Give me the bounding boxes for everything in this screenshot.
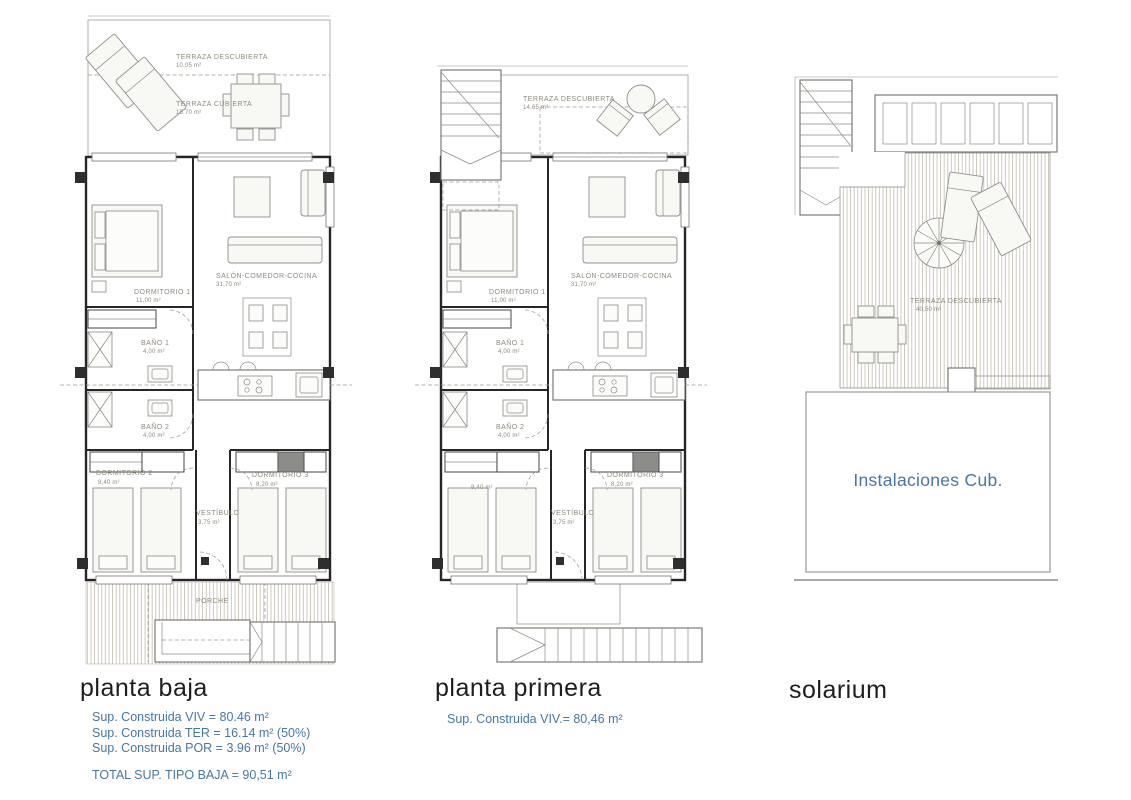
bano1-area: 4,00 m² [498,349,520,355]
terraza-descubierta-label: TERRAZA DESCUBIERTA [176,54,268,61]
dormitorio1-label: DORMITORIO 1 [134,289,191,296]
summary-planta-baja: Sup. Construida VIV = 80.46 m² Sup. Cons… [92,710,310,757]
terraza-descubierta-label: TERRAZA DESCUBIERTA [523,96,615,103]
vestibulo-label: VESTÍBULO [551,508,594,517]
coffee-table [234,177,270,217]
bed-single [496,488,536,572]
sofa [228,237,322,263]
kitchen-sink [296,373,322,397]
porche-label: PORCHE [196,598,229,605]
dormitorio3-label: DORMITORIO 3 [607,472,664,479]
bed-single [593,488,633,572]
armchair [301,170,325,216]
plan-planta-baja: TERRAZA DESCUBIERTA 10,05 m² TERRAZA CUB… [60,16,352,664]
bano2-area: 4,00 m² [143,433,165,439]
salon-area: 31,70 m² [571,282,596,288]
salon-area: 31,70 m² [216,282,241,288]
dormitorio3-area: 8,20 m² [256,482,278,488]
dormitorio2-area: 8,40 m² [98,480,120,486]
bano1-label: BAÑO 1 [141,338,169,347]
terraza-descubierta-area: 14,65 m² [523,105,548,111]
window [451,576,527,584]
sofa [583,237,677,263]
vestibulo-area: 3,75 m² [553,520,575,526]
dormitorio2-label: DORMITORIO 2 [96,470,153,477]
plan-solarium: TERRAZA DESCUBIERTA 40,50 m² Instalacion… [794,77,1058,580]
window [240,576,316,584]
bed-single [238,488,278,572]
porch: PORCHE [86,582,335,664]
terraza-cubierta-label: TERRAZA CUBIERTA [176,101,252,108]
bano1-area: 4,00 m² [143,349,165,355]
closet [236,452,326,472]
coffee-table [589,177,625,217]
title-solarium: solarium [789,676,887,705]
bano2-label: BAÑO 2 [496,422,524,431]
bano2-label: BAÑO 2 [141,422,169,431]
window [92,153,176,161]
kitchen-sink [651,373,677,397]
patio-chair [597,100,633,136]
dormitorio3-label: DORMITORIO 3 [252,472,309,479]
dormitorio3-area: 8,20 m² [611,482,633,488]
dormitorio1-label: DORMITORIO 1 [489,289,546,296]
window [595,576,671,584]
pergola [875,95,1057,152]
terrace-primera: TERRAZA DESCUBIERTA 14,65 m² [501,75,688,155]
bed-single [448,488,488,572]
exterior-stairs [250,622,335,662]
bed-single [141,488,181,572]
title-planta-primera: planta primera [435,674,602,703]
vestibulo-area: 3,75 m² [198,520,220,526]
summary-total-baja: TOTAL SUP. TIPO BAJA = 90,51 m² [92,768,292,784]
exterior-stairs [497,628,702,662]
bed-single [93,488,133,572]
summary-planta-primera: Sup. Construida VIV.= 80,46 m² [447,712,623,728]
bano2-area: 4,00 m² [498,433,520,439]
plan-planta-primera: TERRAZA DESCUBIERTA 14,65 m² [415,66,707,662]
summary-line: Sup. Construida POR = 3.96 m² (50%) [92,741,310,757]
building-baja: DORMITORIO 1 11,00 m² SALÓN-COMEDOR-COCI… [60,153,352,584]
terraza-descubierta-area: 10,05 m² [176,63,201,69]
hob [593,376,627,396]
terraza-descubierta-area: 40,50 m² [916,307,941,313]
planter [155,620,250,662]
roof-terrace: TERRAZA DESCUBIERTA 40,50 m² [839,152,1050,394]
armchair [656,170,680,216]
salon-label: SALÓN-COMEDOR-COCINA [216,271,317,280]
floor-plan-sheet: { "colors": { "accent_blue": "#4577a5", … [0,0,1131,800]
closet [445,452,539,472]
hob [238,376,272,396]
title-planta-baja: planta baja [80,674,208,703]
salon-label: SALÓN-COMEDOR-COCINA [571,271,672,280]
window [96,576,172,584]
balcony [517,582,620,624]
instalaciones-box: Instalaciones Cub. [794,392,1058,580]
summary-line: Sup. Construida VIV.= 80,46 m² [447,712,623,728]
terrace-baja: TERRAZA DESCUBIERTA 10,05 m² TERRAZA CUB… [85,16,330,156]
vestibulo-label: VESTÍBULO [196,508,239,517]
terraza-descubierta-label: TERRAZA DESCUBIERTA [910,298,1002,305]
dormitorio1-area: 11,00 m² [491,298,516,304]
instalaciones-label: Instalaciones Cub. [853,470,1002,490]
closet [90,452,184,472]
terraza-cubierta-area: 15,70 m² [176,110,201,116]
building-primera: DORMITORIO 1 11,00 m² SALÓN-COMEDOR-COCI… [415,153,707,584]
closet [591,452,681,472]
dormitorio1-area: 11,00 m² [136,298,161,304]
summary-line: Sup. Construida VIV = 80.46 m² [92,710,310,726]
dormitorio2-area: 8,40 m² [471,485,493,491]
bano1-label: BAÑO 1 [496,338,524,347]
summary-line: Sup. Construida TER = 16.14 m² (50%) [92,726,310,742]
